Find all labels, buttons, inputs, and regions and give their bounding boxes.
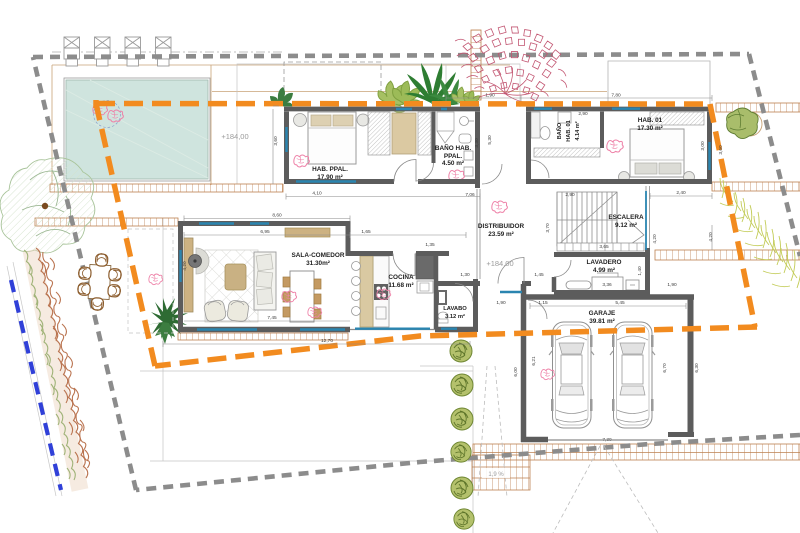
svg-text:7,45: 7,45 <box>267 315 277 321</box>
svg-text:39.81 m²: 39.81 m² <box>589 318 615 325</box>
svg-text:3,60: 3,60 <box>718 145 724 155</box>
svg-text:3,00: 3,00 <box>700 141 706 151</box>
svg-text:BAÑO HAB.: BAÑO HAB. <box>435 143 471 152</box>
svg-text:17.90 m²: 17.90 m² <box>317 174 343 181</box>
svg-text:9.12 m²: 9.12 m² <box>615 222 637 229</box>
svg-text:12,70: 12,70 <box>321 338 333 344</box>
svg-text:3,30: 3,30 <box>474 138 480 148</box>
svg-text:PPAL.: PPAL. <box>444 153 463 160</box>
svg-text:SALA-COMEDOR: SALA-COMEDOR <box>292 252 345 259</box>
svg-text:1,65: 1,65 <box>361 229 371 235</box>
svg-text:1,15: 1,15 <box>538 300 548 306</box>
svg-text:GARAJE: GARAJE <box>589 310 616 317</box>
svg-text:4.99 m²: 4.99 m² <box>593 267 615 274</box>
svg-text:LAVADERO: LAVADERO <box>587 259 622 266</box>
svg-text:3,36: 3,36 <box>602 282 612 288</box>
svg-text:8,60: 8,60 <box>272 213 282 219</box>
svg-text:7,06: 7,06 <box>465 192 475 198</box>
svg-text:ESCALERA: ESCALERA <box>608 214 644 221</box>
svg-text:11.68 m²: 11.68 m² <box>388 282 413 289</box>
svg-text:1,90: 1,90 <box>485 93 495 99</box>
svg-text:2,40: 2,40 <box>676 190 686 196</box>
svg-text:COCINA: COCINA <box>388 274 414 281</box>
svg-text:HAB. PPAL.: HAB. PPAL. <box>312 166 348 173</box>
svg-text:+184,00: +184,00 <box>486 259 513 268</box>
svg-text:HAB. 01: HAB. 01 <box>566 120 572 141</box>
svg-text:6,21: 6,21 <box>531 356 537 366</box>
svg-text:5,45: 5,45 <box>615 300 625 306</box>
svg-text:5,30: 5,30 <box>487 135 493 145</box>
svg-text:2,90: 2,90 <box>565 192 575 198</box>
svg-text:LAVABO: LAVABO <box>443 306 467 312</box>
svg-text:1,40: 1,40 <box>637 266 643 276</box>
svg-text:23.59 m²: 23.59 m² <box>488 231 514 238</box>
svg-text:3,60: 3,60 <box>273 136 279 146</box>
svg-text:HAB. 01: HAB. 01 <box>638 117 663 124</box>
svg-text:4,20: 4,20 <box>708 232 714 242</box>
svg-text:1,35: 1,35 <box>425 242 435 248</box>
svg-text:31.30m²: 31.30m² <box>306 260 330 267</box>
svg-text:4.50 m²: 4.50 m² <box>442 160 464 167</box>
svg-text:4,20: 4,20 <box>652 234 658 244</box>
svg-text:1,9 %: 1,9 % <box>488 472 504 478</box>
svg-text:+184,00: +184,00 <box>221 132 248 141</box>
svg-text:1,90: 1,90 <box>667 282 677 288</box>
svg-text:1,45: 1,45 <box>534 272 544 278</box>
svg-text:6,95: 6,95 <box>260 229 270 235</box>
svg-text:2,90: 2,90 <box>578 111 588 117</box>
svg-text:1,30: 1,30 <box>460 272 470 278</box>
svg-text:1,90: 1,90 <box>496 300 506 306</box>
svg-text:6,00: 6,00 <box>513 367 519 377</box>
svg-text:6,70: 6,70 <box>662 363 668 373</box>
svg-text:3,70: 3,70 <box>545 223 551 233</box>
svg-text:4,20: 4,20 <box>182 261 188 271</box>
svg-text:7,80: 7,80 <box>611 93 621 99</box>
svg-text:3.12 m²: 3.12 m² <box>445 313 465 320</box>
svg-text:3,65: 3,65 <box>599 244 609 250</box>
svg-text:DISTRIBUIDOR: DISTRIBUIDOR <box>478 223 525 230</box>
svg-text:4.14 m²: 4.14 m² <box>574 121 581 140</box>
svg-text:4,10: 4,10 <box>312 191 322 197</box>
svg-text:BAÑO: BAÑO <box>556 122 563 139</box>
svg-text:17.30 m²: 17.30 m² <box>637 125 663 132</box>
svg-text:6,30: 6,30 <box>694 363 700 373</box>
